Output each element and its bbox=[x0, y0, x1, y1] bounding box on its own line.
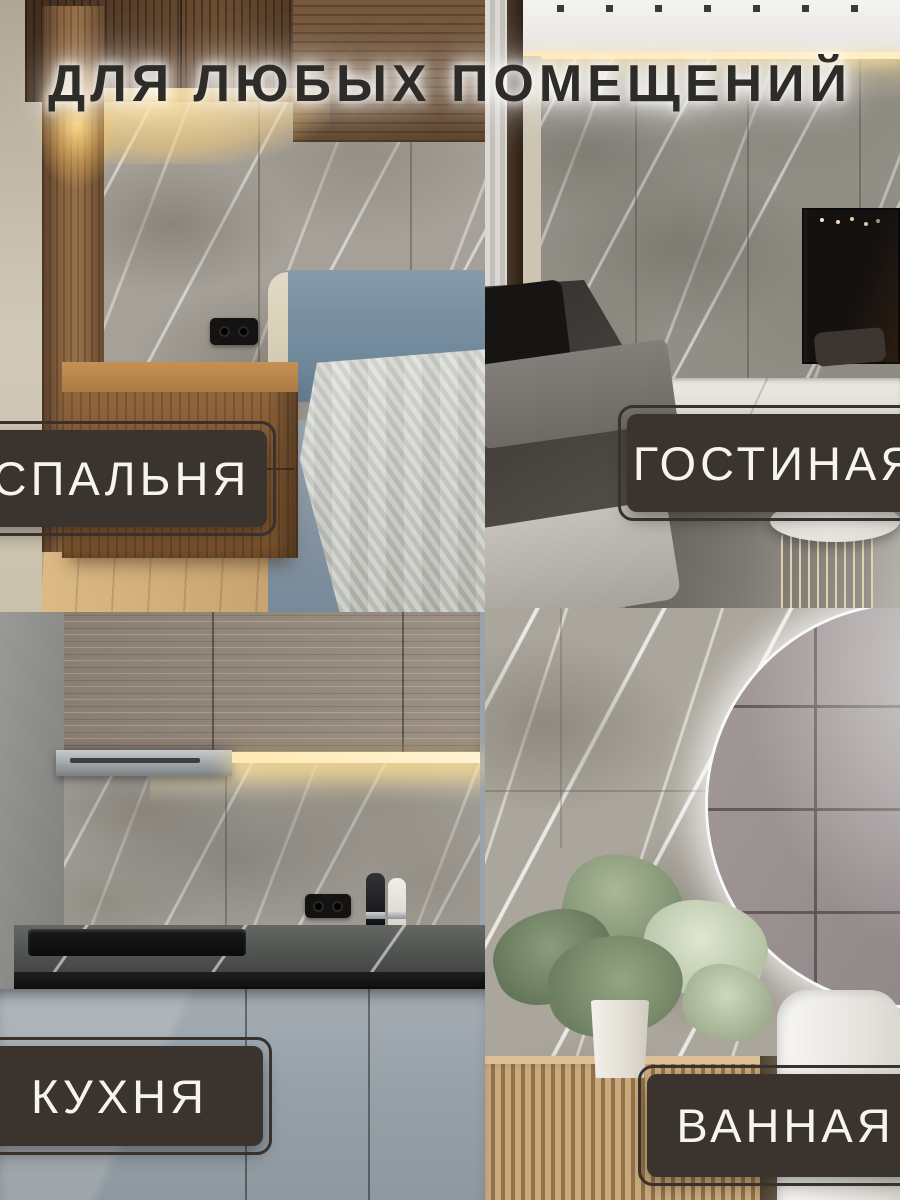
bedroom-label-outline bbox=[0, 421, 276, 536]
bathroom-label-outline bbox=[638, 1065, 900, 1186]
range-hood bbox=[56, 750, 232, 776]
kitchen-label: КУХНЯ bbox=[0, 1046, 263, 1146]
nightstand-top bbox=[62, 362, 298, 392]
socket-outlet bbox=[332, 901, 343, 912]
promo-image: СПАЛЬНЯ ГОСТИНАЯ КУХНЯ ВАННАЯ ДЛЯ ЛЮБЫХ … bbox=[0, 0, 900, 1200]
bathroom-label: ВАННАЯ bbox=[647, 1074, 900, 1177]
cabinet-seam bbox=[212, 612, 214, 752]
marble-panel-joint bbox=[485, 790, 715, 792]
socket-outlet bbox=[313, 901, 324, 912]
page-title: ДЛЯ ЛЮБЫХ ПОМЕЩЕНИЙ bbox=[0, 54, 900, 114]
pepper-grinder bbox=[366, 873, 385, 927]
socket-outlet bbox=[238, 326, 249, 337]
reflected-pillow bbox=[814, 327, 887, 367]
power-socket bbox=[210, 318, 258, 345]
living-room-label-outline bbox=[618, 405, 900, 521]
cabinet-seam bbox=[368, 989, 370, 1200]
white-vase bbox=[589, 1000, 651, 1078]
power-socket bbox=[305, 894, 351, 918]
marble-panel-joint bbox=[560, 608, 562, 848]
ceiling-track-lights bbox=[515, 5, 900, 12]
kitchen-label-outline bbox=[0, 1037, 272, 1155]
induction-cooktop bbox=[28, 929, 246, 956]
socket-outlet bbox=[219, 326, 230, 337]
cabinet-seam bbox=[402, 612, 404, 752]
reflected-spotlights bbox=[820, 218, 824, 222]
under-cabinet-led-strip bbox=[232, 752, 480, 763]
countertop-edge bbox=[14, 972, 485, 989]
range-hood-vent bbox=[70, 758, 200, 763]
kitchen-upper-cabinets bbox=[28, 612, 480, 752]
living-room-label: ГОСТИНАЯ bbox=[627, 414, 900, 512]
salt-grinder bbox=[388, 878, 406, 927]
bedroom-label: СПАЛЬНЯ bbox=[0, 430, 267, 527]
